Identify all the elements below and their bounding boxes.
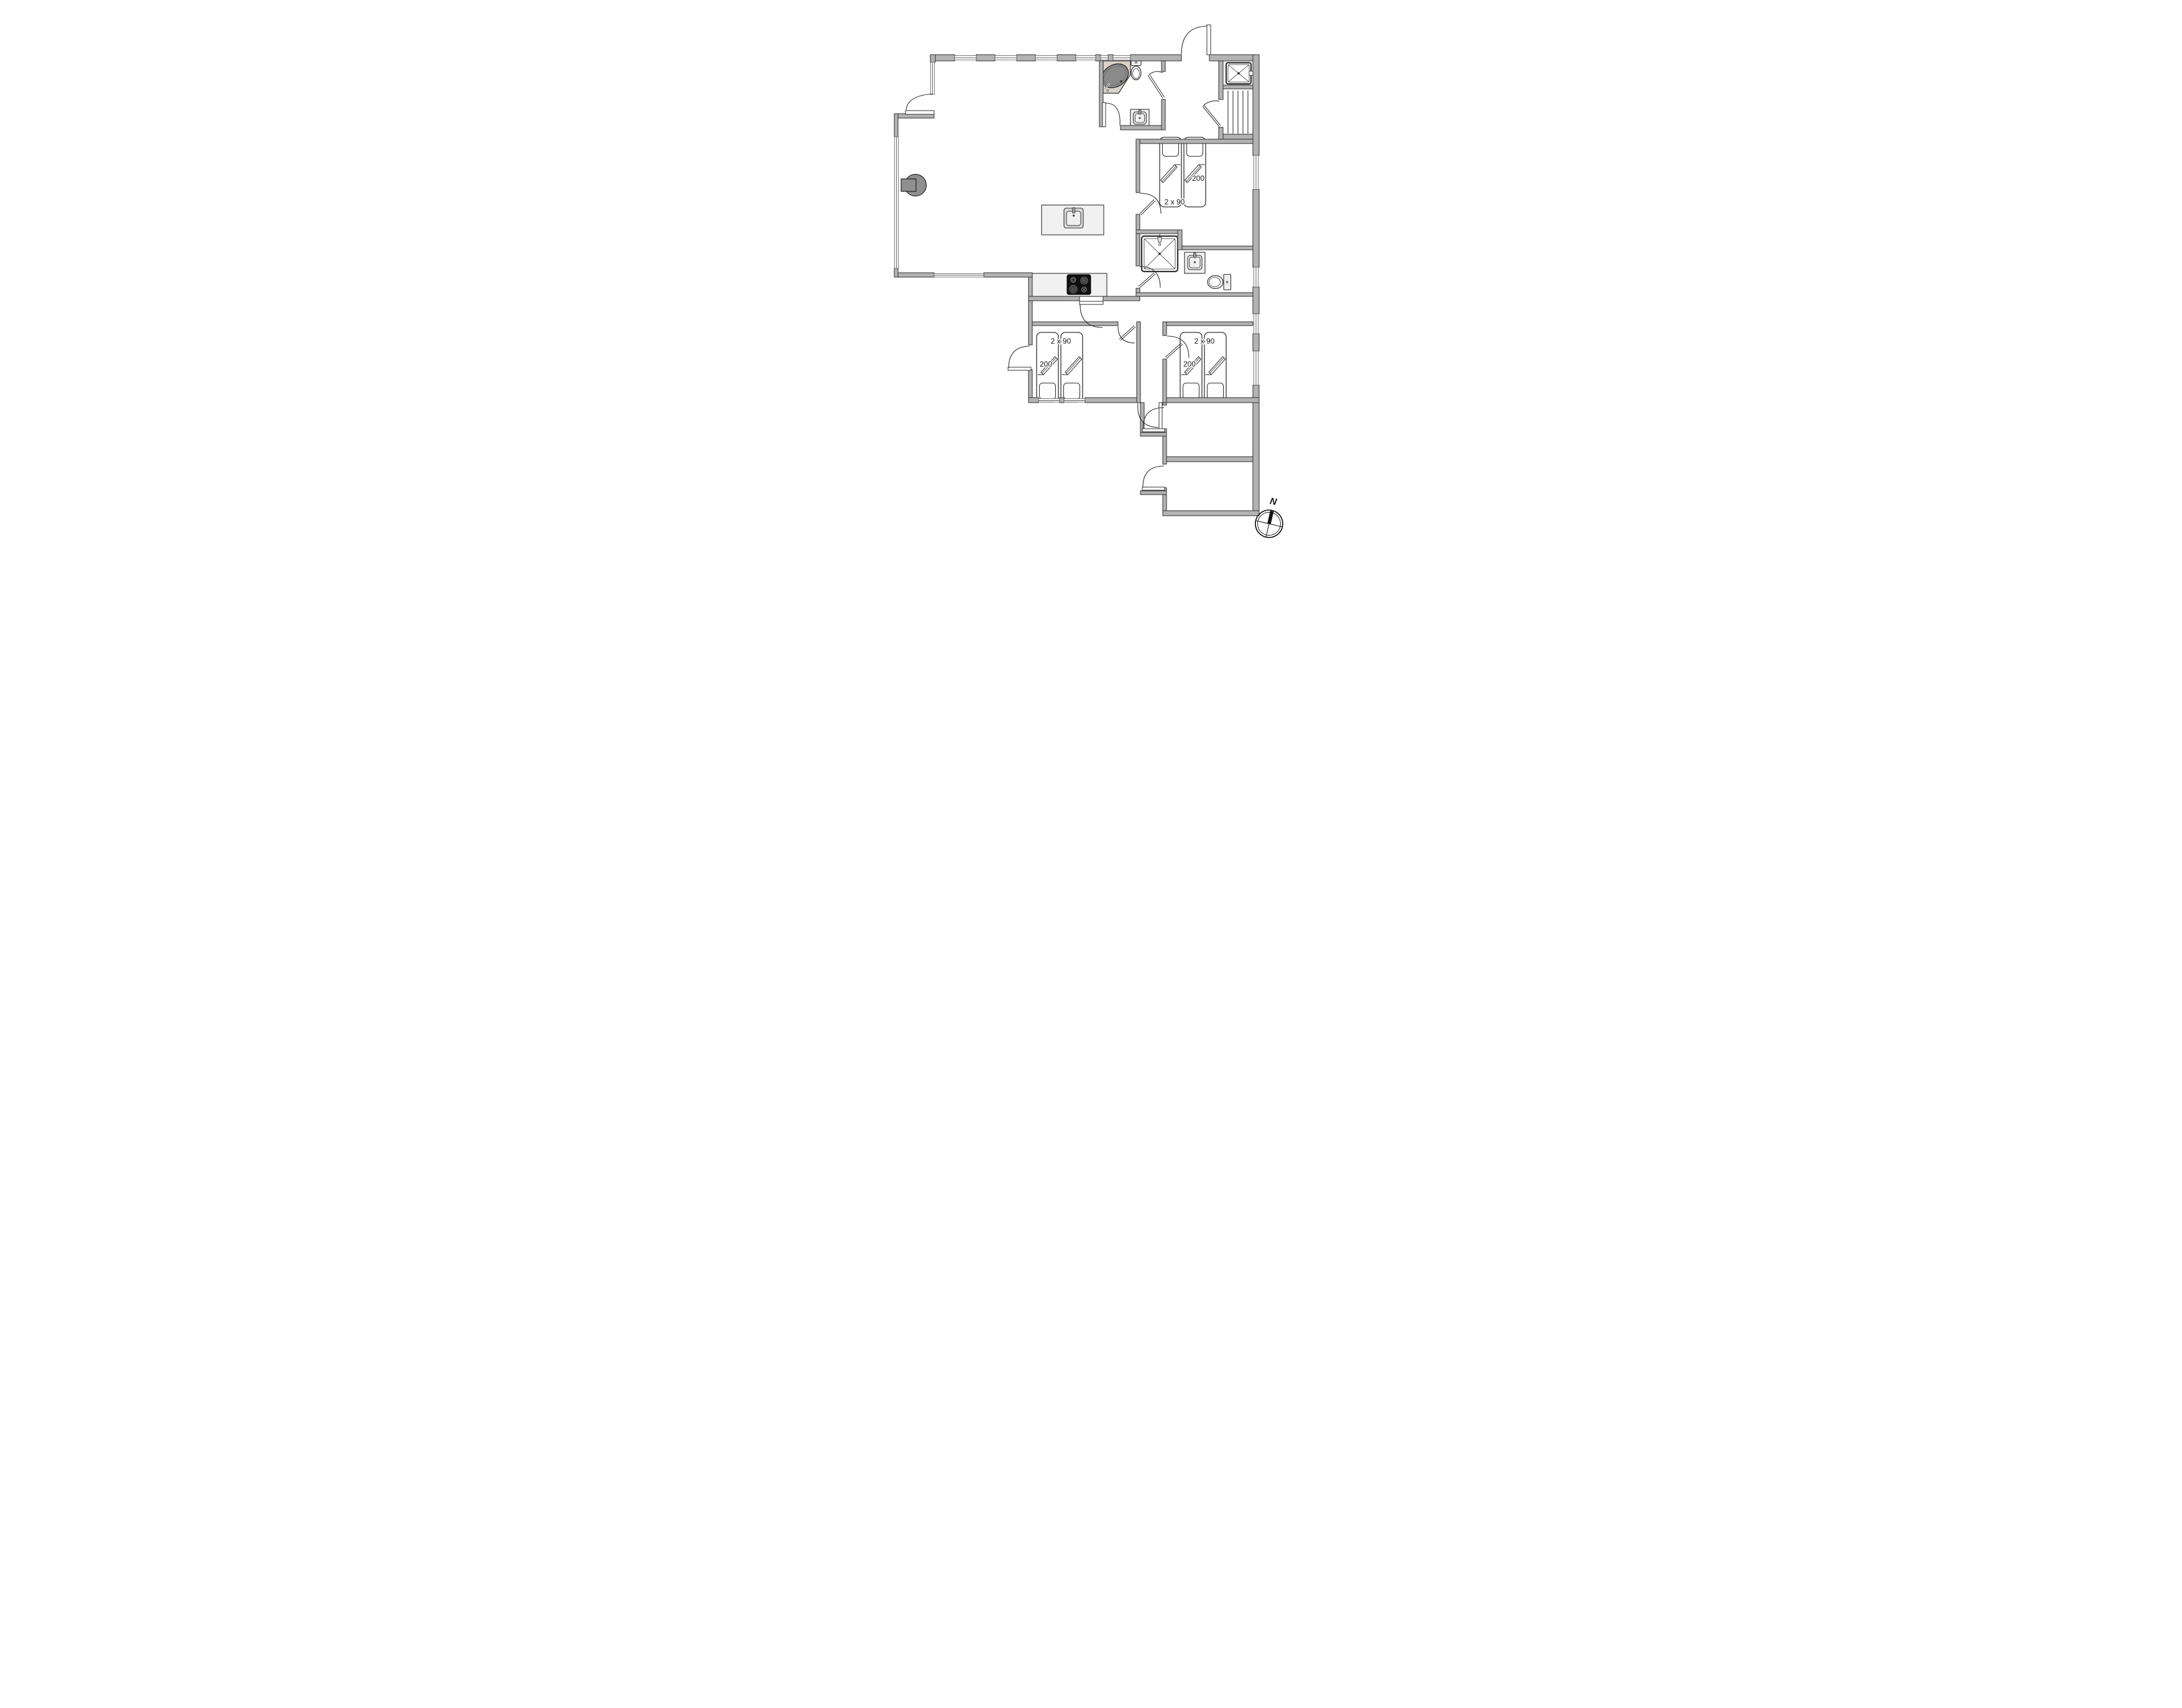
stairs-icon: [1228, 91, 1248, 134]
bed-size-label: 2 x 90: [1050, 337, 1071, 345]
bathroom-door-east: [1148, 71, 1165, 98]
bathroom-door-west: [1102, 103, 1120, 127]
window: [1076, 56, 1096, 60]
north-label: N: [1268, 496, 1278, 508]
window: [1035, 56, 1057, 60]
bed-length-label: 200: [1192, 174, 1204, 183]
window: [1254, 267, 1258, 287]
west-entry-door: [905, 94, 934, 114]
bed-length-label: 200: [1040, 360, 1052, 368]
bedroom-sw-door: [1118, 326, 1135, 343]
window: [930, 62, 934, 94]
bedroom-ne-door: [1140, 193, 1161, 215]
tub-drain: [1120, 80, 1122, 83]
window: [1254, 314, 1258, 334]
window: [1064, 399, 1085, 403]
compass-needle: [1267, 511, 1273, 524]
bed-size-label: 2 x 90: [1164, 198, 1185, 206]
window: [1101, 56, 1108, 60]
window: [934, 274, 984, 278]
wood-stove-icon: [901, 175, 927, 196]
window: [1254, 155, 1258, 190]
window: [955, 56, 976, 60]
floor-plan-page: 2 x 90 200 2 x 90 200 2 x 90 200 N: [0, 0, 2182, 569]
island-sink-icon: [1064, 208, 1083, 228]
entry-shower-room: [1226, 63, 1253, 84]
ensuite-sink-icon: [1185, 252, 1205, 273]
bed-size-label: 2 x 90: [1194, 337, 1214, 345]
ensuite-bathroom: [1142, 234, 1231, 290]
kitchen: [1032, 205, 1107, 296]
window: [1038, 399, 1060, 403]
west-exterior-door: [1008, 346, 1031, 370]
shower-tap: [1249, 71, 1253, 76]
entrance-door: [1181, 25, 1211, 55]
window: [995, 56, 1017, 60]
bathroom-sink-icon: [1130, 109, 1149, 127]
stairs-door: [1203, 101, 1221, 127]
toilet-icon: [1131, 60, 1141, 80]
floor-plan-svg: 2 x 90 200 2 x 90 200 2 x 90 200 N: [728, 0, 1455, 569]
annex-door-south: [1142, 466, 1165, 490]
window: [894, 137, 898, 268]
window: [1113, 56, 1130, 60]
bedroom-northeast: [1160, 137, 1206, 207]
window: [1254, 351, 1258, 385]
bed-length-label: 200: [1183, 360, 1196, 368]
ensuite-toilet-icon: [1208, 275, 1231, 290]
